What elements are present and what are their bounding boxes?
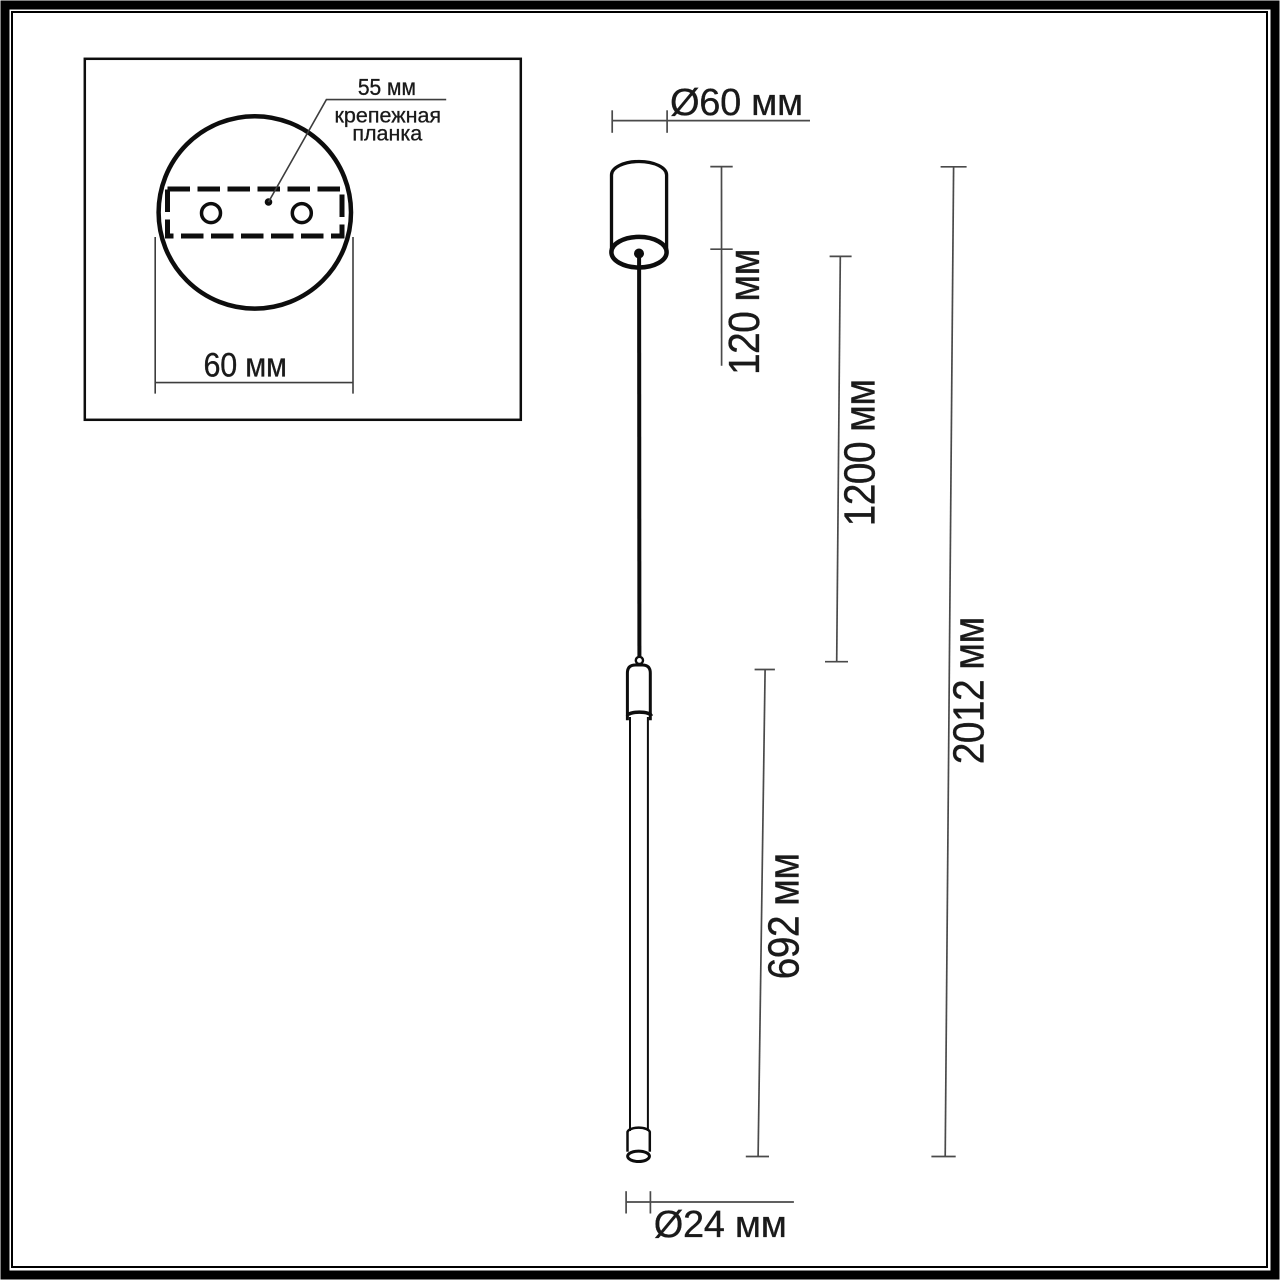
- svg-text:55 мм: 55 мм: [358, 74, 416, 100]
- svg-text:Ø24 мм: Ø24 мм: [654, 1204, 787, 1246]
- svg-text:2012 мм: 2012 мм: [944, 617, 993, 764]
- svg-text:692 мм: 692 мм: [760, 853, 809, 979]
- svg-text:60 мм: 60 мм: [204, 346, 287, 384]
- svg-text:1200 мм: 1200 мм: [835, 379, 884, 526]
- svg-text:Ø60 мм: Ø60 мм: [670, 82, 803, 124]
- svg-text:120 мм: 120 мм: [720, 249, 769, 375]
- svg-text:планка: планка: [352, 121, 422, 145]
